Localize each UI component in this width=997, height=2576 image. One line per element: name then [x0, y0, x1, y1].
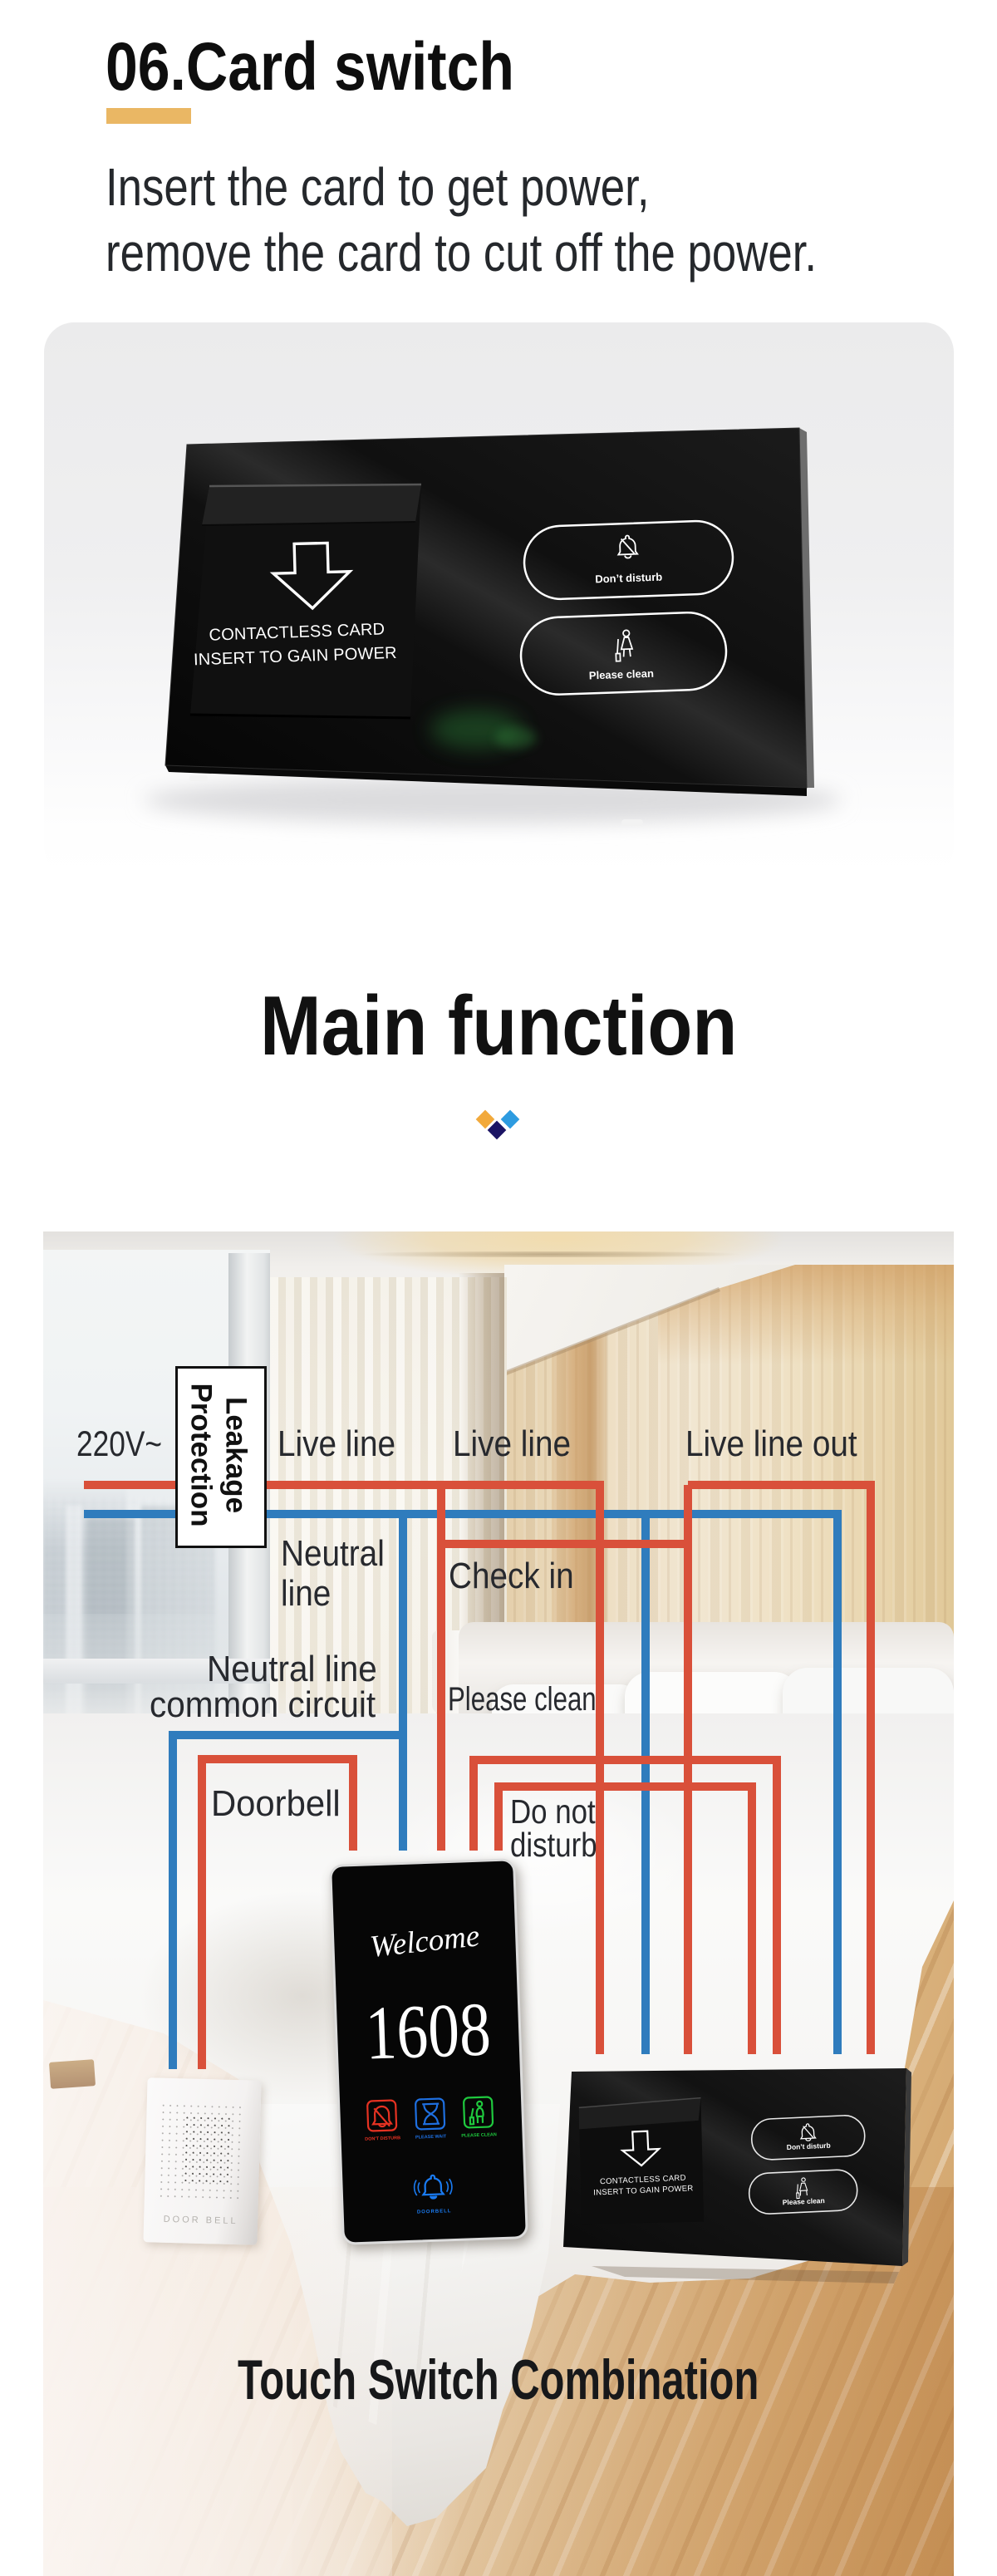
svg-text:Don’t disturb: Don’t disturb: [595, 571, 662, 586]
svg-text:Please clean: Please clean: [589, 667, 655, 682]
